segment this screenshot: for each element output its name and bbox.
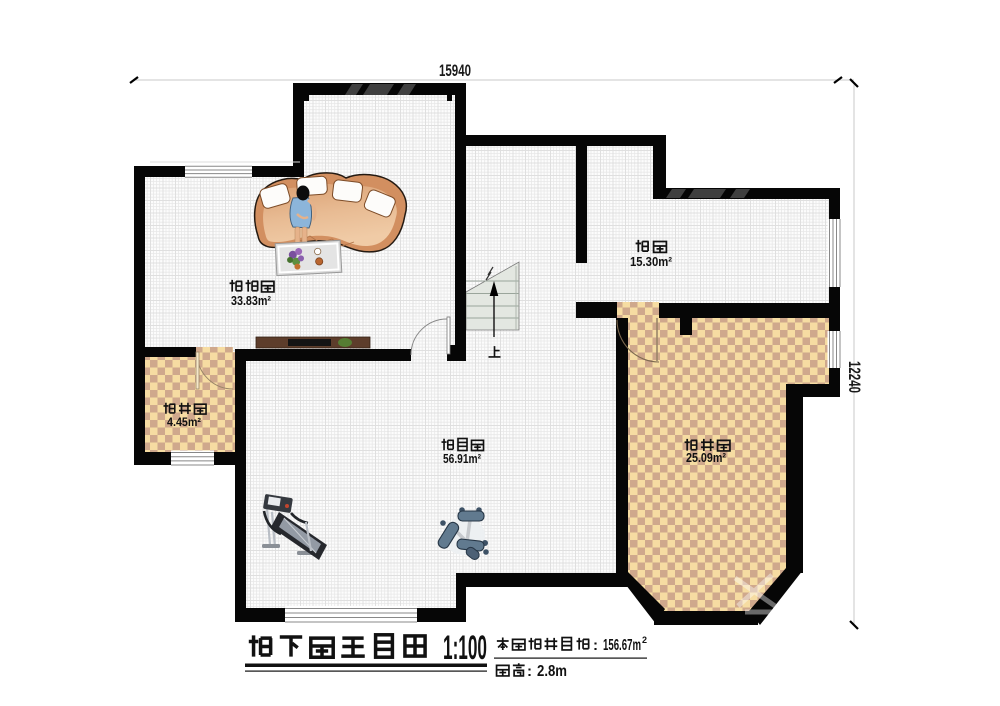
svg-text:2.8m: 2.8m <box>537 663 567 680</box>
svg-text::: : <box>593 637 598 654</box>
svg-text::: : <box>527 663 532 680</box>
svg-text:2: 2 <box>642 635 647 645</box>
svg-text:15.30m²: 15.30m² <box>630 254 673 269</box>
svg-text:1:100: 1:100 <box>443 629 487 667</box>
svg-text:15940: 15940 <box>439 61 471 80</box>
svg-text:56.91m²: 56.91m² <box>443 451 482 466</box>
svg-text:33.83m²: 33.83m² <box>231 293 272 308</box>
svg-text:12240: 12240 <box>845 361 864 393</box>
svg-text:25.09m²: 25.09m² <box>686 451 726 465</box>
svg-text:4.45m²: 4.45m² <box>167 415 201 429</box>
svg-text:156.67m: 156.67m <box>603 637 641 654</box>
